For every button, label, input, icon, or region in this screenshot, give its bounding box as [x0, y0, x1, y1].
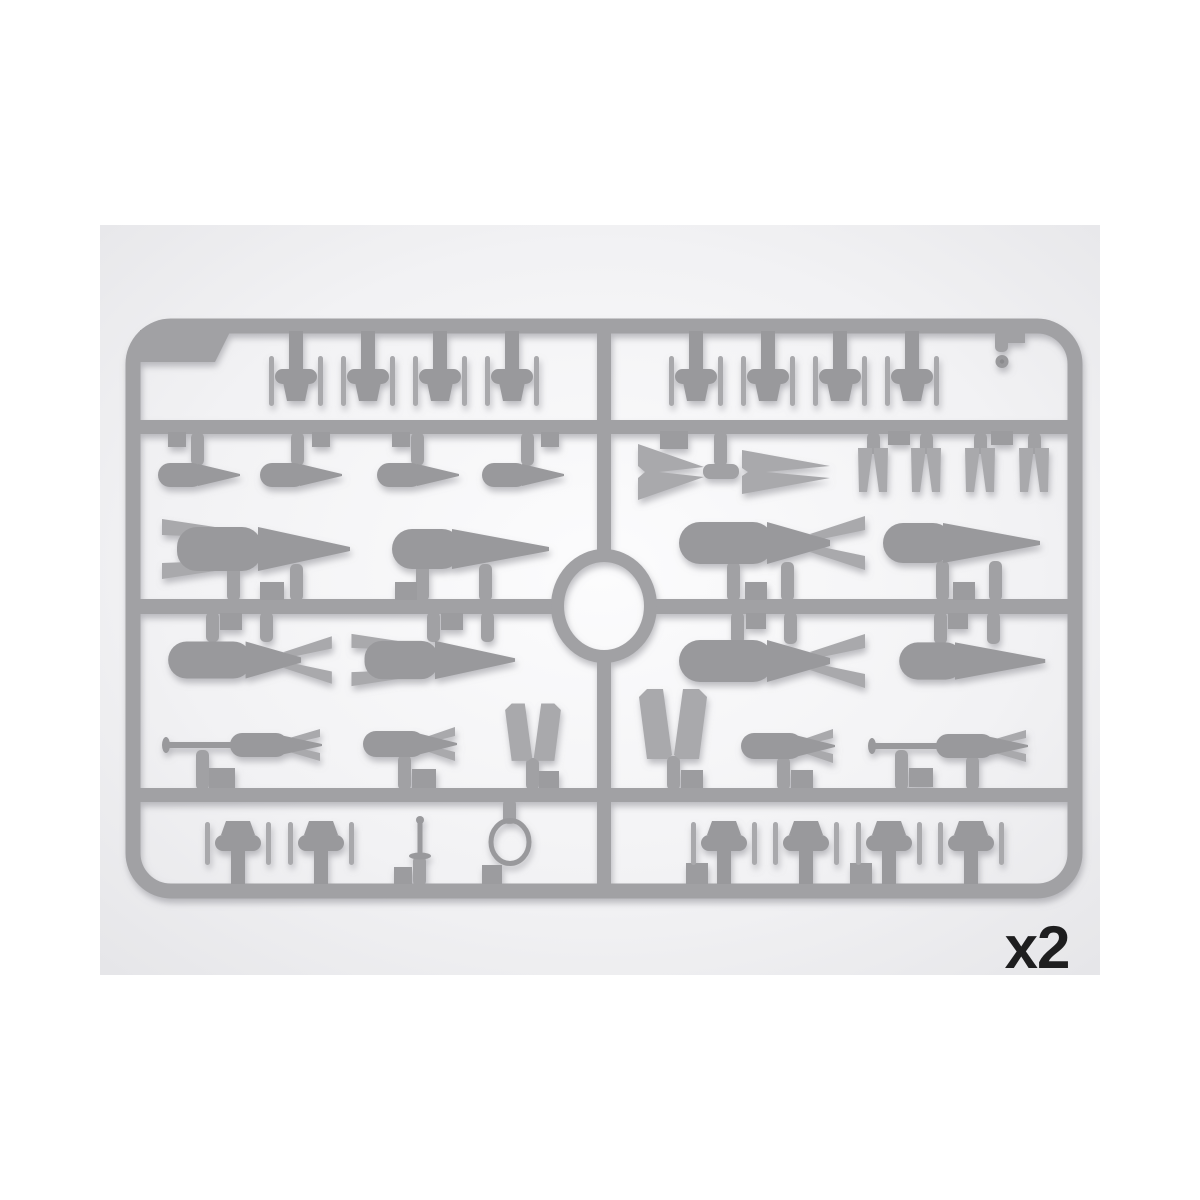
corner-tab-top-right	[1007, 331, 1025, 343]
runner-vertical-lower	[597, 656, 611, 891]
quantity-label: x2	[1005, 914, 1070, 981]
part-small-finned-bomb	[363, 727, 457, 761]
runner-vertical-upper	[597, 326, 611, 556]
product-photo: x2	[0, 0, 1200, 1200]
runner-middle-left	[135, 599, 559, 614]
corner-tab-top-left	[140, 330, 231, 362]
small-disc-hole	[1000, 359, 1004, 363]
runner-middle-right	[649, 599, 1070, 614]
part-small-finned-bomb	[741, 729, 835, 763]
corner-stem-top-right	[995, 330, 1008, 352]
product-photo-page: x2	[0, 0, 1200, 1200]
